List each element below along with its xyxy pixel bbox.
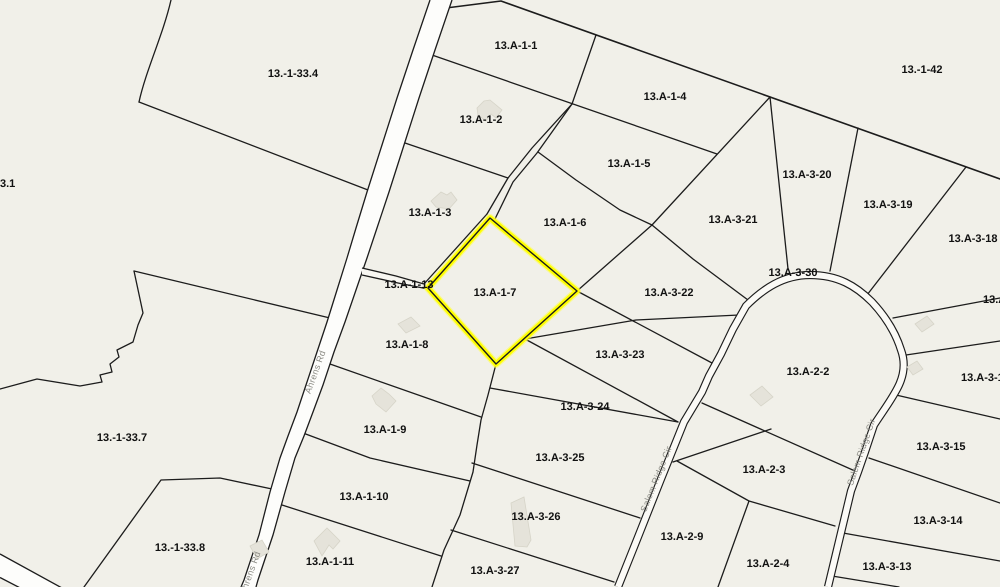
svg-text:13.A-3-24: 13.A-3-24 [561, 401, 611, 413]
svg-text:13.-1-33.7: 13.-1-33.7 [97, 432, 147, 444]
svg-text:13.A-3-18: 13.A-3-18 [949, 233, 998, 245]
svg-text:13.A-2-9: 13.A-2-9 [661, 531, 704, 543]
svg-text:13.A-3-25: 13.A-3-25 [536, 452, 585, 464]
svg-text:13.A-3-27: 13.A-3-27 [471, 565, 520, 577]
svg-text:13.A-2-3: 13.A-2-3 [743, 464, 786, 476]
svg-text:13.-1-33.8: 13.-1-33.8 [155, 542, 205, 554]
svg-text:13.A-3-22: 13.A-3-22 [645, 287, 694, 299]
svg-text:13.A-3-21: 13.A-3-21 [709, 214, 758, 226]
svg-text:13.A-3-26: 13.A-3-26 [512, 511, 561, 523]
svg-text:13.-1-42: 13.-1-42 [902, 64, 943, 76]
svg-text:13.A-2-4: 13.A-2-4 [747, 558, 791, 570]
svg-text:13.A-3-13: 13.A-3-13 [863, 561, 912, 573]
svg-text:13.A-3-20: 13.A-3-20 [783, 169, 832, 181]
svg-text:13.A-1-5: 13.A-1-5 [608, 158, 651, 170]
svg-text:13.A-3-17: 13.A-3-17 [983, 294, 1000, 306]
svg-text:13.A-2-2: 13.A-2-2 [787, 366, 830, 378]
svg-text:13.A-3-16: 13.A-3-16 [961, 372, 1000, 384]
svg-text:13.A-3-19: 13.A-3-19 [864, 199, 913, 211]
svg-text:13.A-1-4: 13.A-1-4 [644, 91, 688, 103]
svg-text:13.A-1-3: 13.A-1-3 [409, 207, 452, 219]
svg-text:13.A-1-13: 13.A-1-13 [385, 279, 434, 291]
svg-text:13.A-1-9: 13.A-1-9 [364, 424, 407, 436]
svg-text:3.1: 3.1 [0, 178, 15, 190]
svg-text:13.-1-33.4: 13.-1-33.4 [268, 68, 319, 80]
svg-text:13.A-1-7: 13.A-1-7 [474, 287, 517, 299]
svg-text:13.A-3-23: 13.A-3-23 [596, 349, 645, 361]
svg-text:13.A-1-10: 13.A-1-10 [340, 491, 389, 503]
svg-text:13.A-1-1: 13.A-1-1 [495, 40, 538, 52]
svg-text:13.A-3-15: 13.A-3-15 [917, 441, 966, 453]
svg-text:13.A-1-8: 13.A-1-8 [386, 339, 429, 351]
svg-text:13.A-3-14: 13.A-3-14 [914, 515, 964, 527]
svg-text:13.A-1-11: 13.A-1-11 [306, 556, 354, 568]
svg-text:13.A-3-30: 13.A-3-30 [769, 267, 818, 279]
svg-text:13.A-1-6: 13.A-1-6 [544, 217, 587, 229]
svg-text:13.A-1-2: 13.A-1-2 [460, 114, 503, 126]
